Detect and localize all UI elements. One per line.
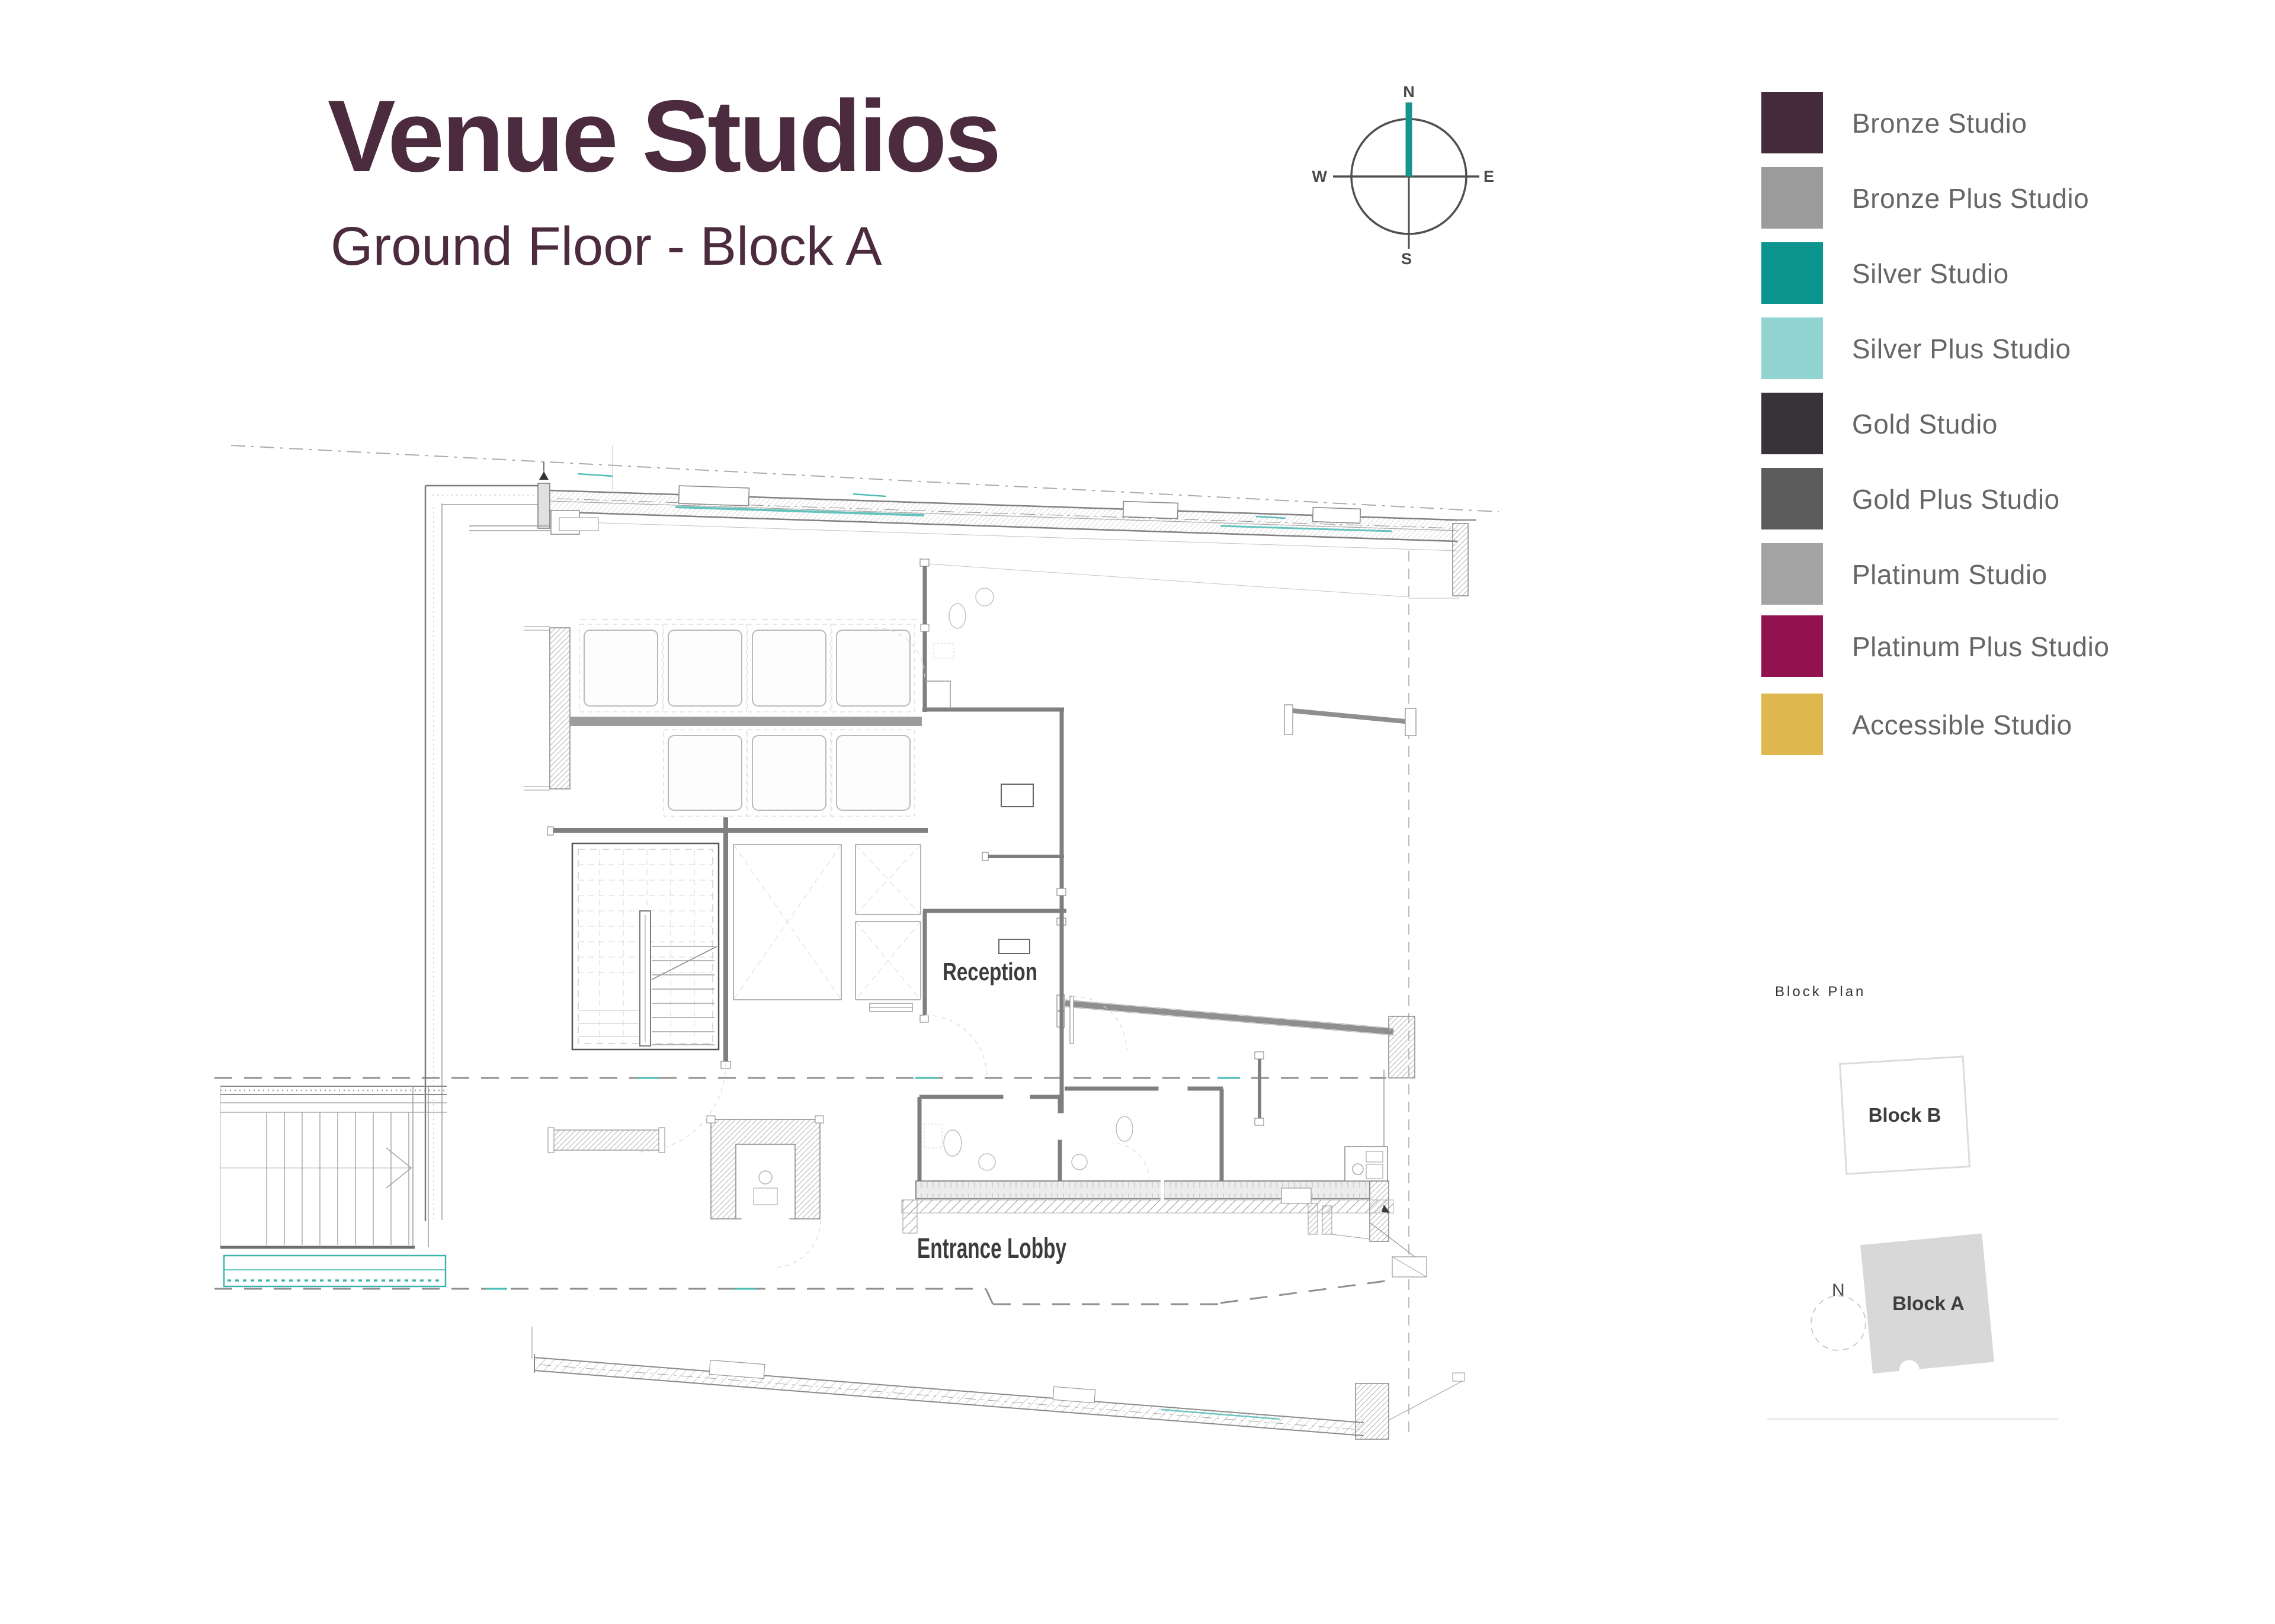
reception-desk bbox=[999, 939, 1030, 954]
block-plan-title: Block Plan bbox=[1775, 984, 1866, 1000]
external-stair bbox=[220, 1086, 447, 1286]
stair-core bbox=[572, 843, 719, 1049]
interior-walls-east bbox=[1057, 705, 1416, 1078]
reception-label: Reception bbox=[943, 958, 1037, 986]
entrance-lobby-label: Entrance Lobby bbox=[917, 1233, 1066, 1264]
upper-rooms bbox=[920, 559, 1066, 925]
block-a-label: Block A bbox=[1892, 1292, 1965, 1314]
block-plan-north-label: N bbox=[1832, 1280, 1845, 1300]
block-plan: Block Plan Block B Block A N bbox=[1748, 959, 2275, 1433]
glazed-screen bbox=[224, 1256, 446, 1286]
bottom-retaining-wall bbox=[532, 1327, 1465, 1439]
building-envelope bbox=[425, 462, 1476, 1221]
block-plan-north-circle bbox=[1811, 1296, 1866, 1350]
skylight-grid bbox=[524, 620, 922, 816]
block-b-label: Block B bbox=[1869, 1104, 1941, 1126]
